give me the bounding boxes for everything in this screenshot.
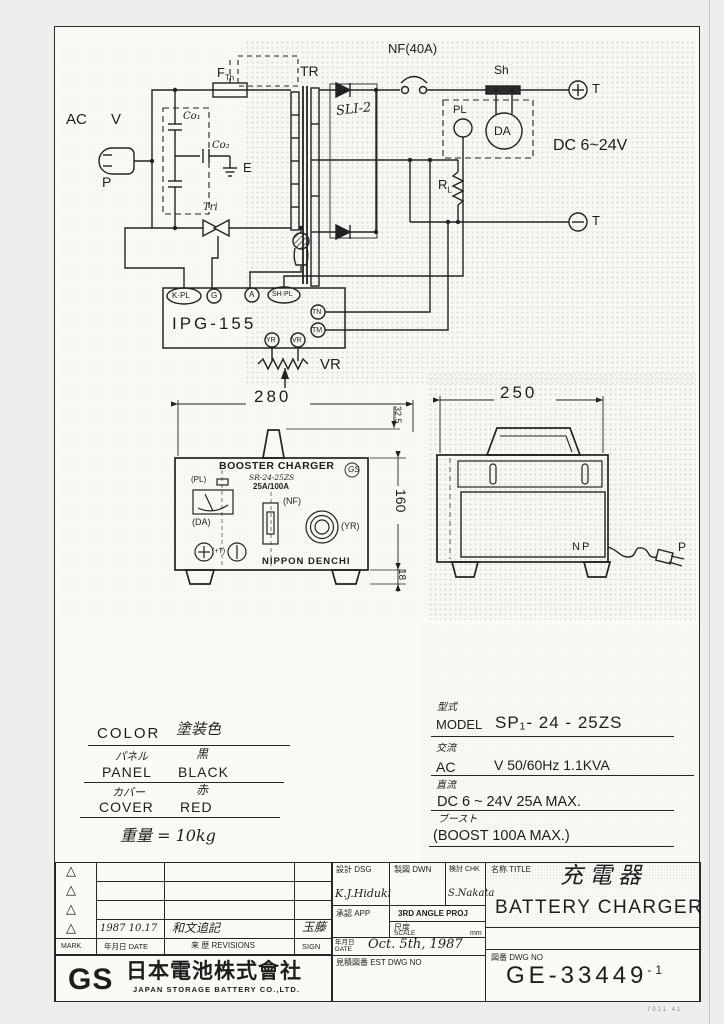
terminal-shpl: SH·PL xyxy=(272,291,293,298)
front-height-dim: 160 xyxy=(394,489,408,512)
control-board-label: IPG-155 xyxy=(172,315,256,332)
spec-model-jp: 型式 xyxy=(437,703,457,713)
revision-date-header: 年月日 DATE xyxy=(104,943,148,951)
rectifier-label: SLI-2 xyxy=(335,101,372,118)
color-header-jp: 塗装色 xyxy=(176,722,221,737)
spacer-cell xyxy=(486,928,701,950)
panel-row-en: PANEL xyxy=(102,765,152,779)
side-plug-label: P xyxy=(678,541,686,553)
dc-rating-label: DC 6~24V xyxy=(553,138,627,154)
panel-t-label: (+T) xyxy=(212,548,225,555)
title-label: 名称 TITLE xyxy=(491,866,531,874)
drawing-sheet-page: AC V P FTh Co₁ Co₂ E Tri TR SLI-2 NF(40A… xyxy=(0,0,724,1024)
revision-triangle-icon: △ xyxy=(66,883,76,896)
rule xyxy=(431,810,674,811)
cover-row-en-value: RED xyxy=(180,800,213,814)
rule xyxy=(88,745,290,746)
date-label-en: DATE xyxy=(335,947,352,954)
revision-triangle-icon: △ xyxy=(66,902,76,915)
side-width-dim: 250 xyxy=(500,384,537,401)
rule xyxy=(84,782,284,783)
spec-dc-jp: 直流 xyxy=(436,781,456,791)
panel-da-label: (DA) xyxy=(192,518,211,527)
panel-nf-label: (NF) xyxy=(283,497,301,506)
spec-boost-value: (BOOST 100A MAX.) xyxy=(433,829,570,844)
dwn-label: 製図 DWN xyxy=(394,866,431,874)
spec-ac-en: AC xyxy=(436,760,455,774)
front-width-dim: 280 xyxy=(254,388,291,405)
dsg-label: 設計 DSG xyxy=(336,866,372,874)
terminal-tn: TN xyxy=(312,309,321,316)
panel-yr-label: (YR) xyxy=(341,522,360,531)
cap2-label: Co₂ xyxy=(212,141,230,151)
panel-model: SR-24-25ZS xyxy=(249,474,294,482)
handle-height-dim: 32.5 xyxy=(393,406,402,424)
revision-sign-header: SIGN xyxy=(302,943,320,951)
fuse-label: FTh xyxy=(217,66,234,82)
rule xyxy=(80,817,280,818)
spec-dc-value: DC 6 ~ 24V 25A MAX. xyxy=(437,795,581,810)
est-dwg-label: 見積図番 EST DWG NO xyxy=(336,959,422,967)
side-np-label: NP xyxy=(572,542,591,553)
rule xyxy=(431,736,674,737)
cap1-label: Co₁ xyxy=(183,112,201,122)
panel-row-jp-value: 黒 xyxy=(196,748,208,760)
rule xyxy=(431,775,694,776)
spec-model-en: MODEL xyxy=(436,718,482,731)
chk-signature: S.Nakata xyxy=(448,889,494,899)
spec-ac-value: V 50/60Hz 1.1KVA xyxy=(494,758,610,772)
triac-label: Tri xyxy=(203,203,218,213)
panel-gs-logo: GS xyxy=(348,466,360,474)
title-en: BATTERY CHARGER xyxy=(495,898,703,917)
ac-label: AC xyxy=(66,112,87,127)
app-label: 承認 APP xyxy=(336,910,370,918)
ground-label: E xyxy=(243,161,252,174)
breaker-label: NF(40A) xyxy=(388,42,437,55)
terminal-a: A xyxy=(249,291,254,299)
plug-label: P xyxy=(102,175,111,189)
dsg-signature: K.J.Hiduki xyxy=(335,888,391,899)
weight-note: 重量 = 10kg xyxy=(120,828,216,844)
terminal-kpl: K·PL xyxy=(172,292,190,300)
projection-label: 3RD ANGLE PROJ xyxy=(398,910,468,918)
revision-mark-header: MARK xyxy=(61,943,81,950)
page-edge-shadow xyxy=(709,0,710,1024)
revision-entry-date: 1987 10.17 xyxy=(100,924,157,934)
negative-terminal-label: T xyxy=(592,214,600,227)
cover-row-jp: カバー xyxy=(112,787,145,798)
ammeter-label: DA xyxy=(494,125,511,137)
chk-label: 検討 CHK xyxy=(449,866,480,873)
panel-pl-label: (PL) xyxy=(191,476,206,484)
pilot-lamp-label: PL xyxy=(453,105,466,116)
rule xyxy=(55,938,332,939)
terminal-tm: TM xyxy=(312,327,322,334)
rule xyxy=(97,900,332,901)
cover-row-jp-value: 赤 xyxy=(196,784,208,796)
positive-terminal-label: T xyxy=(592,82,600,95)
rule xyxy=(97,919,332,920)
panel-title: BOOSTER CHARGER xyxy=(219,461,334,472)
terminal-g: G xyxy=(211,292,217,300)
dwg-no-value: GE-33449-1 xyxy=(506,964,666,988)
panel-rating: 25A/100A xyxy=(253,483,289,491)
voltage-label: V xyxy=(111,112,121,127)
panel-brand: NIPPON DENCHI xyxy=(262,557,350,567)
revision-entry-text: 和文追記 xyxy=(172,922,220,934)
pot-label: VR xyxy=(320,357,341,372)
revision-entry-sign: 玉藤 xyxy=(302,921,326,933)
corner-print-mark: 7011 41 xyxy=(647,1007,682,1013)
date-value: Oct. 5th, 1987 xyxy=(368,938,463,951)
company-name-jp: 日本電池株式會社 xyxy=(126,961,302,982)
panel-row-jp: パネル xyxy=(115,751,148,762)
dwg-no-label: 図番 DWG NO xyxy=(491,954,543,962)
load-resistor-label: RL xyxy=(438,178,452,194)
gs-logo: GS xyxy=(68,965,113,995)
color-header-en: COLOR xyxy=(97,726,160,741)
title-jp: 充電器 xyxy=(560,865,647,888)
shunt-label: Sh xyxy=(494,64,509,76)
rule xyxy=(97,881,332,882)
spec-boost-jp: ブースト xyxy=(438,815,478,825)
revision-triangle-icon: △ xyxy=(66,921,76,934)
scale-unit: mm xyxy=(470,930,482,937)
transformer-label: TR xyxy=(300,64,319,78)
company-name-en: JAPAN STORAGE BATTERY CO.,LTD. xyxy=(133,986,300,994)
revision-text-header: 来 歴 REVISIONS xyxy=(191,942,255,950)
sheet-border xyxy=(54,26,700,1002)
spec-model-value: SP₁- 24 - 25ZS xyxy=(495,714,622,731)
terminal-vr: VR xyxy=(292,337,302,344)
spec-ac-jp: 交流 xyxy=(436,744,456,754)
cover-row-en: COVER xyxy=(99,800,154,814)
terminal-yr: YR xyxy=(266,337,276,344)
rule xyxy=(429,846,674,847)
revision-mark-column xyxy=(55,862,97,955)
revision-triangle-icon: △ xyxy=(66,864,76,877)
panel-row-en-value: BLACK xyxy=(178,765,229,779)
feet-height-dim: 18 xyxy=(396,569,406,580)
